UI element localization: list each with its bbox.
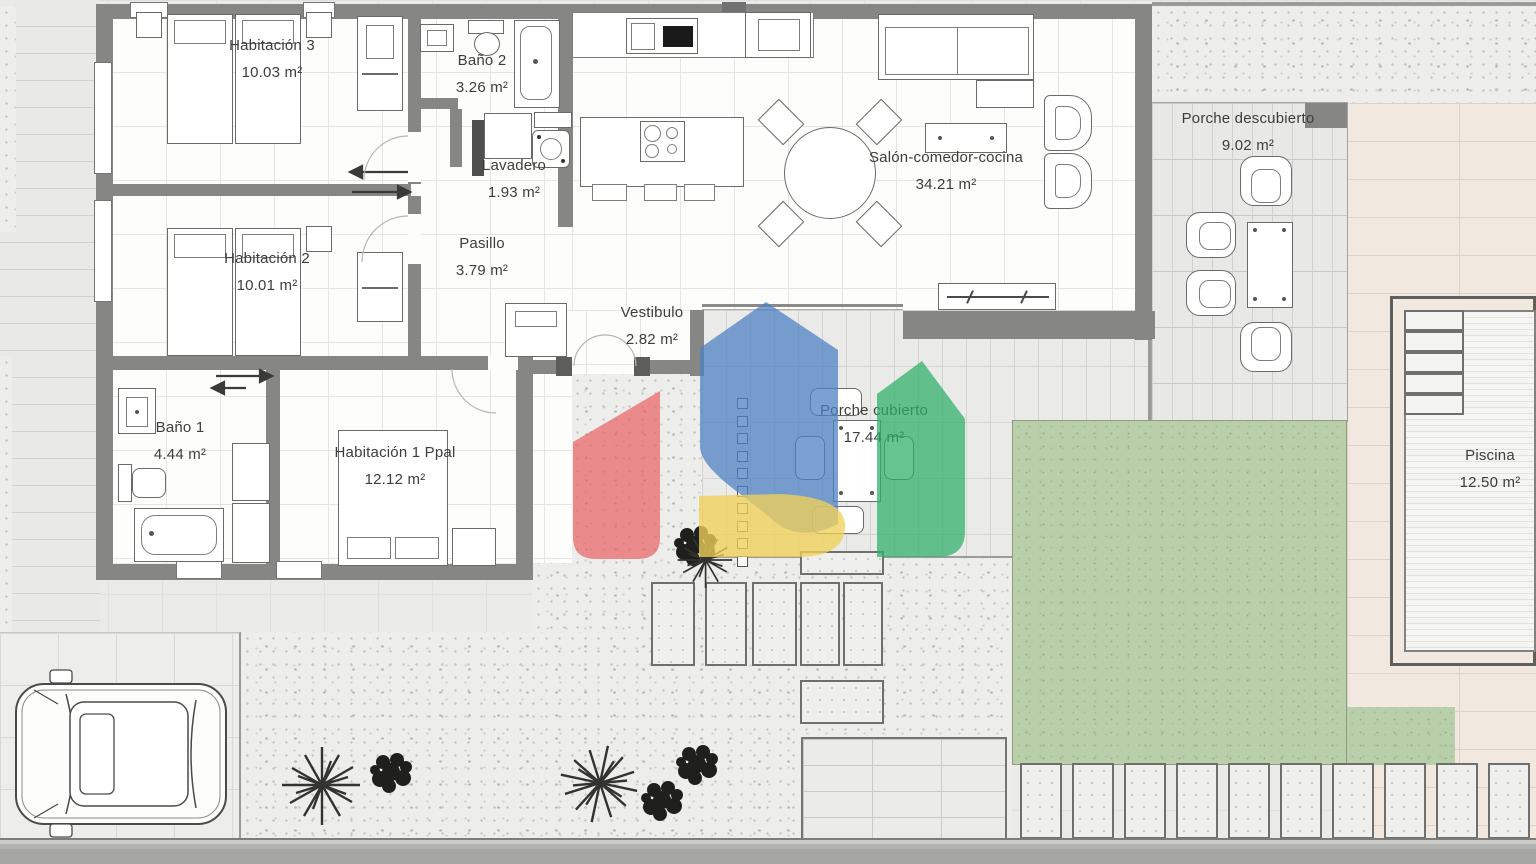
exterior-wall-salon-right	[1135, 4, 1152, 340]
gravel-strip-left-bottom	[0, 356, 12, 632]
laundry-shelf	[534, 112, 572, 128]
sidewalk	[0, 838, 1536, 864]
nightstand	[306, 226, 332, 252]
wardrobe	[232, 503, 270, 563]
burner	[666, 127, 678, 139]
chair-seat	[1199, 222, 1231, 250]
pillow	[174, 234, 226, 258]
chair-seat	[1199, 280, 1231, 308]
door-gap-hab3	[408, 132, 421, 182]
room-label-vestibulo: Vestibulo2.82 m²	[621, 305, 684, 347]
window	[276, 561, 322, 579]
bar-stool	[644, 184, 677, 201]
fridge-inner	[758, 19, 800, 51]
path-dot	[737, 556, 748, 567]
cooktop	[640, 121, 685, 162]
wall-bano2-lavadero	[408, 98, 458, 109]
terrace-chair	[1240, 322, 1292, 372]
fridge	[745, 12, 811, 58]
dining-table	[784, 127, 876, 219]
terrace-chair	[1186, 212, 1236, 258]
bar-stool	[684, 184, 715, 201]
burner	[667, 144, 677, 154]
path-dot	[737, 503, 748, 514]
wardrobe	[357, 16, 403, 111]
entry-door-post	[634, 357, 650, 376]
armchair	[1044, 95, 1092, 151]
paver	[705, 582, 747, 666]
burner	[644, 125, 661, 142]
wall-lavadero-left	[450, 109, 462, 167]
path-dot	[737, 451, 748, 462]
room-label-habitacion-1: Habitación 1 Ppal12.12 m²	[335, 445, 456, 487]
room-label-pasillo: Pasillo3.79 m²	[456, 236, 508, 278]
terrace-chair	[1186, 270, 1236, 316]
wardrobe	[232, 443, 270, 501]
stepping-stone	[1280, 763, 1322, 839]
sliding-glass-door-line	[702, 309, 903, 310]
bed-single	[167, 228, 233, 356]
sink	[118, 388, 156, 434]
bench-line	[947, 296, 1049, 298]
sink-basin	[427, 30, 447, 46]
tub-drain	[149, 531, 154, 536]
room-label-lavadero: Lavadero1.93 m²	[482, 158, 546, 200]
lawn	[1012, 420, 1347, 765]
pool-step	[1404, 331, 1464, 352]
table-dot	[1282, 297, 1286, 301]
toilet-tank	[118, 464, 132, 502]
room-label-salon: Salón-comedor-cocina34.21 m²	[869, 150, 1023, 192]
table-dot	[1282, 228, 1286, 232]
paver	[651, 582, 695, 666]
patio-slab	[801, 737, 1007, 841]
bed-single	[167, 14, 233, 144]
kitchen-sink	[631, 23, 655, 50]
door-gap-hab1	[488, 356, 518, 370]
chair-seat	[1251, 169, 1281, 203]
shower	[514, 20, 560, 108]
paver	[752, 582, 797, 666]
path-dot	[737, 486, 748, 497]
path-dot	[737, 468, 748, 479]
stepping-stone	[1176, 763, 1218, 839]
wardrobe-shelf	[366, 25, 394, 59]
stepping-stone	[1020, 763, 1062, 839]
paver	[800, 551, 884, 575]
pillow	[347, 537, 391, 559]
terrace-chair	[1240, 156, 1292, 206]
lawn-extension	[1347, 707, 1455, 765]
kitchen-sink-unit	[626, 18, 698, 54]
nightstand	[136, 12, 162, 38]
porch-chair	[812, 506, 864, 534]
table-dot	[870, 491, 874, 495]
washer-knob	[561, 159, 565, 163]
bathtub	[134, 508, 224, 562]
entry-door-post	[556, 357, 572, 376]
bench-knob	[990, 136, 994, 140]
bar-stool	[592, 184, 627, 201]
sink-drain	[135, 410, 139, 414]
room-label-habitacion-2: Habitación 210.01 m²	[224, 251, 310, 293]
entry-closet	[505, 303, 567, 357]
pool-step	[1404, 394, 1464, 415]
paver	[843, 582, 883, 666]
wall-hab3-hab2	[96, 184, 411, 196]
sofa	[878, 14, 1034, 80]
table-dot	[839, 491, 843, 495]
path-dot	[737, 538, 748, 549]
paver	[800, 680, 884, 724]
armchair-seat	[1055, 106, 1081, 140]
window	[94, 200, 112, 302]
gravel-band-top	[1152, 6, 1536, 103]
nightstand	[452, 528, 496, 566]
stepping-stone	[1124, 763, 1166, 839]
wall-hab2-hab1	[96, 356, 533, 370]
pool-step	[1404, 310, 1464, 331]
washer-knob	[537, 135, 541, 139]
stepping-stone	[1488, 763, 1530, 839]
room-label-bano-1: Baño 14.44 m²	[154, 420, 206, 462]
pillow	[174, 20, 226, 44]
closet-shelf	[515, 311, 557, 327]
terrace-table	[1247, 222, 1293, 308]
pillow	[395, 537, 439, 559]
table-dot	[1253, 297, 1257, 301]
nightstand	[306, 12, 332, 38]
path-dot	[737, 416, 748, 427]
table-dot	[1253, 228, 1257, 232]
burner	[645, 144, 659, 158]
wardrobe	[357, 252, 403, 322]
shower-drain	[533, 59, 538, 64]
room-label-porche-cubierto: Porche cubierto17.44 m²	[820, 403, 928, 445]
sofa-seam	[957, 27, 958, 75]
sliding-glass-door	[702, 304, 903, 307]
pool-step	[1404, 352, 1464, 373]
stepping-stone	[1228, 763, 1270, 839]
stepping-stone	[1384, 763, 1426, 839]
sink	[420, 24, 454, 52]
stepping-stone	[1072, 763, 1114, 839]
window-bench	[938, 283, 1056, 310]
oven	[663, 26, 693, 47]
stepping-stone	[1436, 763, 1478, 839]
room-label-piscina: Piscina12.50 m²	[1460, 448, 1521, 490]
pool-step	[1404, 373, 1464, 394]
toilet-bowl	[132, 468, 166, 498]
paver	[800, 582, 840, 666]
armchair-seat	[1055, 164, 1081, 198]
gravel-strip-left-top	[0, 6, 16, 232]
stepping-stone	[1332, 763, 1374, 839]
path-dot	[737, 398, 748, 409]
path-dot	[737, 521, 748, 532]
room-label-bano-2: Baño 23.26 m²	[456, 53, 508, 95]
room-label-porche-descubierto: Porche descubierto9.02 m²	[1182, 111, 1315, 153]
bench-knob	[938, 136, 942, 140]
window	[176, 561, 222, 579]
room-label-habitacion-3: Habitación 310.03 m²	[229, 38, 315, 80]
floor-plan: Habitación 310.03 m² Baño 23.26 m² Lavad…	[0, 0, 1536, 864]
path-dot	[737, 433, 748, 444]
armchair	[1044, 153, 1092, 209]
exterior-wall-salon-bottom	[903, 311, 1155, 339]
driveway	[0, 632, 240, 838]
door-gap-hab2	[408, 214, 421, 264]
sofa-chaise	[976, 80, 1034, 108]
wardrobe-rail	[362, 287, 398, 289]
wardrobe-rail	[362, 73, 398, 75]
laundry-counter	[484, 113, 532, 159]
chair-seat	[1251, 327, 1281, 361]
window	[94, 62, 112, 174]
